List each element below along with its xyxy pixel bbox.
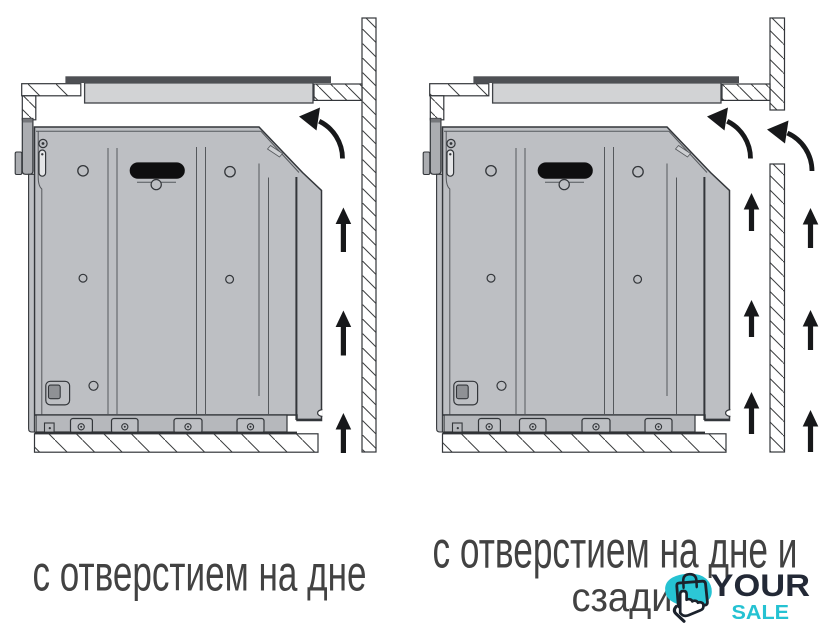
svg-text:YOUR: YOUR xyxy=(711,567,811,603)
svg-text:с отверстием на дне: с отверстием на дне xyxy=(33,545,367,601)
svg-text:сзади: сзади xyxy=(572,574,673,620)
svg-text:SALE: SALE xyxy=(732,602,790,624)
